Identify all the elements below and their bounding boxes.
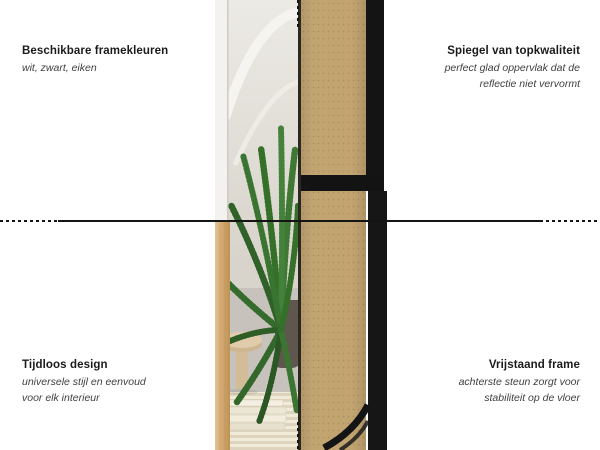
horizontal-divider-solid: [58, 220, 540, 222]
horizontal-divider-dashed-right: [540, 220, 600, 222]
callout-freestanding-frame: Vrijstaand frame achterste steun zorgt v…: [459, 359, 580, 407]
callout-subtitle: achterste steun zorgt voor stabiliteit o…: [459, 375, 580, 407]
callout-subtitle: perfect glad oppervlak dat de reflectie …: [445, 61, 580, 93]
callout-title: Beschikbare framekleuren: [22, 45, 168, 57]
support-hinge-bar: [301, 175, 384, 191]
paper-stack: [224, 400, 286, 430]
callout-mirror-quality: Spiegel van topkwaliteit perfect glad op…: [445, 45, 580, 93]
oak-frame-strip: [215, 221, 230, 450]
callout-title: Vrijstaand frame: [459, 359, 580, 371]
infographic-canvas: Beschikbare framekleuren wit, zwart, eik…: [0, 0, 600, 450]
callout-frame-colors: Beschikbare framekleuren wit, zwart, eik…: [22, 45, 168, 77]
callout-subtitle: universele stijl en eenvoud voor elk int…: [22, 375, 146, 407]
vertical-divider-dashed-bottom: [297, 422, 299, 450]
horizontal-divider-dashed-left: [0, 220, 58, 222]
white-frame-strip: [215, 0, 229, 221]
mirror-front-photo: [215, 0, 298, 450]
mdf-back-panel: [298, 0, 366, 450]
callout-subtitle: wit, zwart, eiken: [22, 61, 168, 77]
support-leg-curve: [298, 390, 392, 450]
black-frame-edge: [366, 0, 384, 191]
mirror-front-scene: [215, 0, 298, 450]
mirror-back-photo: [298, 0, 392, 450]
callout-timeless-design: Tijdloos design universele stijl en eenv…: [22, 359, 146, 407]
callout-title: Tijdloos design: [22, 359, 146, 371]
callout-title: Spiegel van topkwaliteit: [445, 45, 580, 57]
vertical-divider-dashed-top: [297, 0, 299, 30]
